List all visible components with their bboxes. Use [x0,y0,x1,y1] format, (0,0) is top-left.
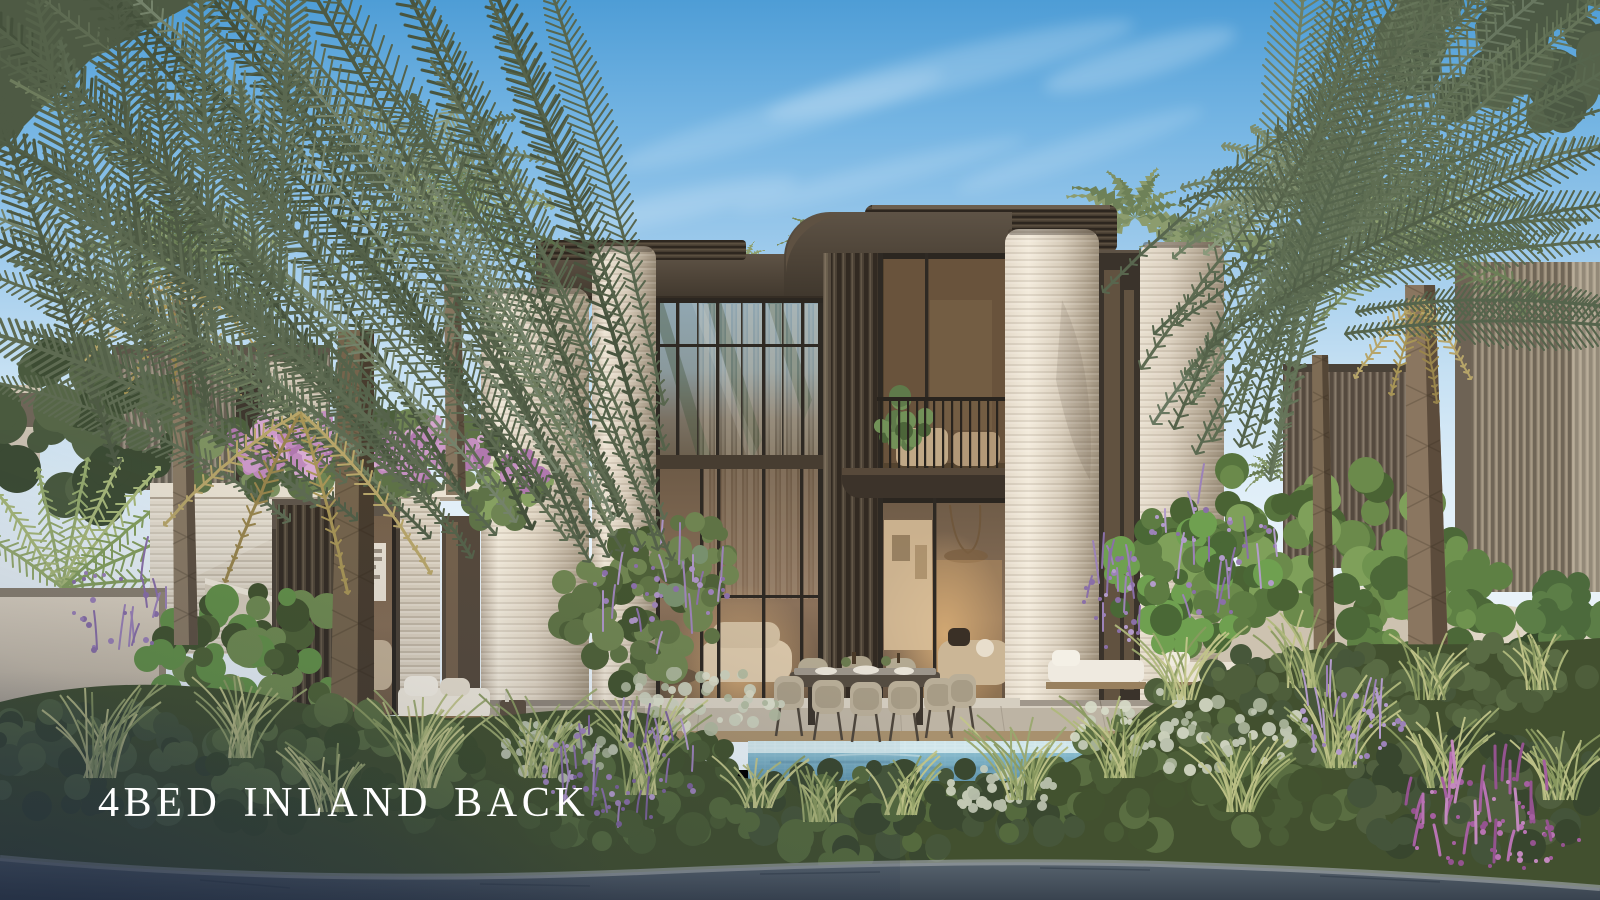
svg-text:4BED INLAND BACK: 4BED INLAND BACK [98,780,589,826]
